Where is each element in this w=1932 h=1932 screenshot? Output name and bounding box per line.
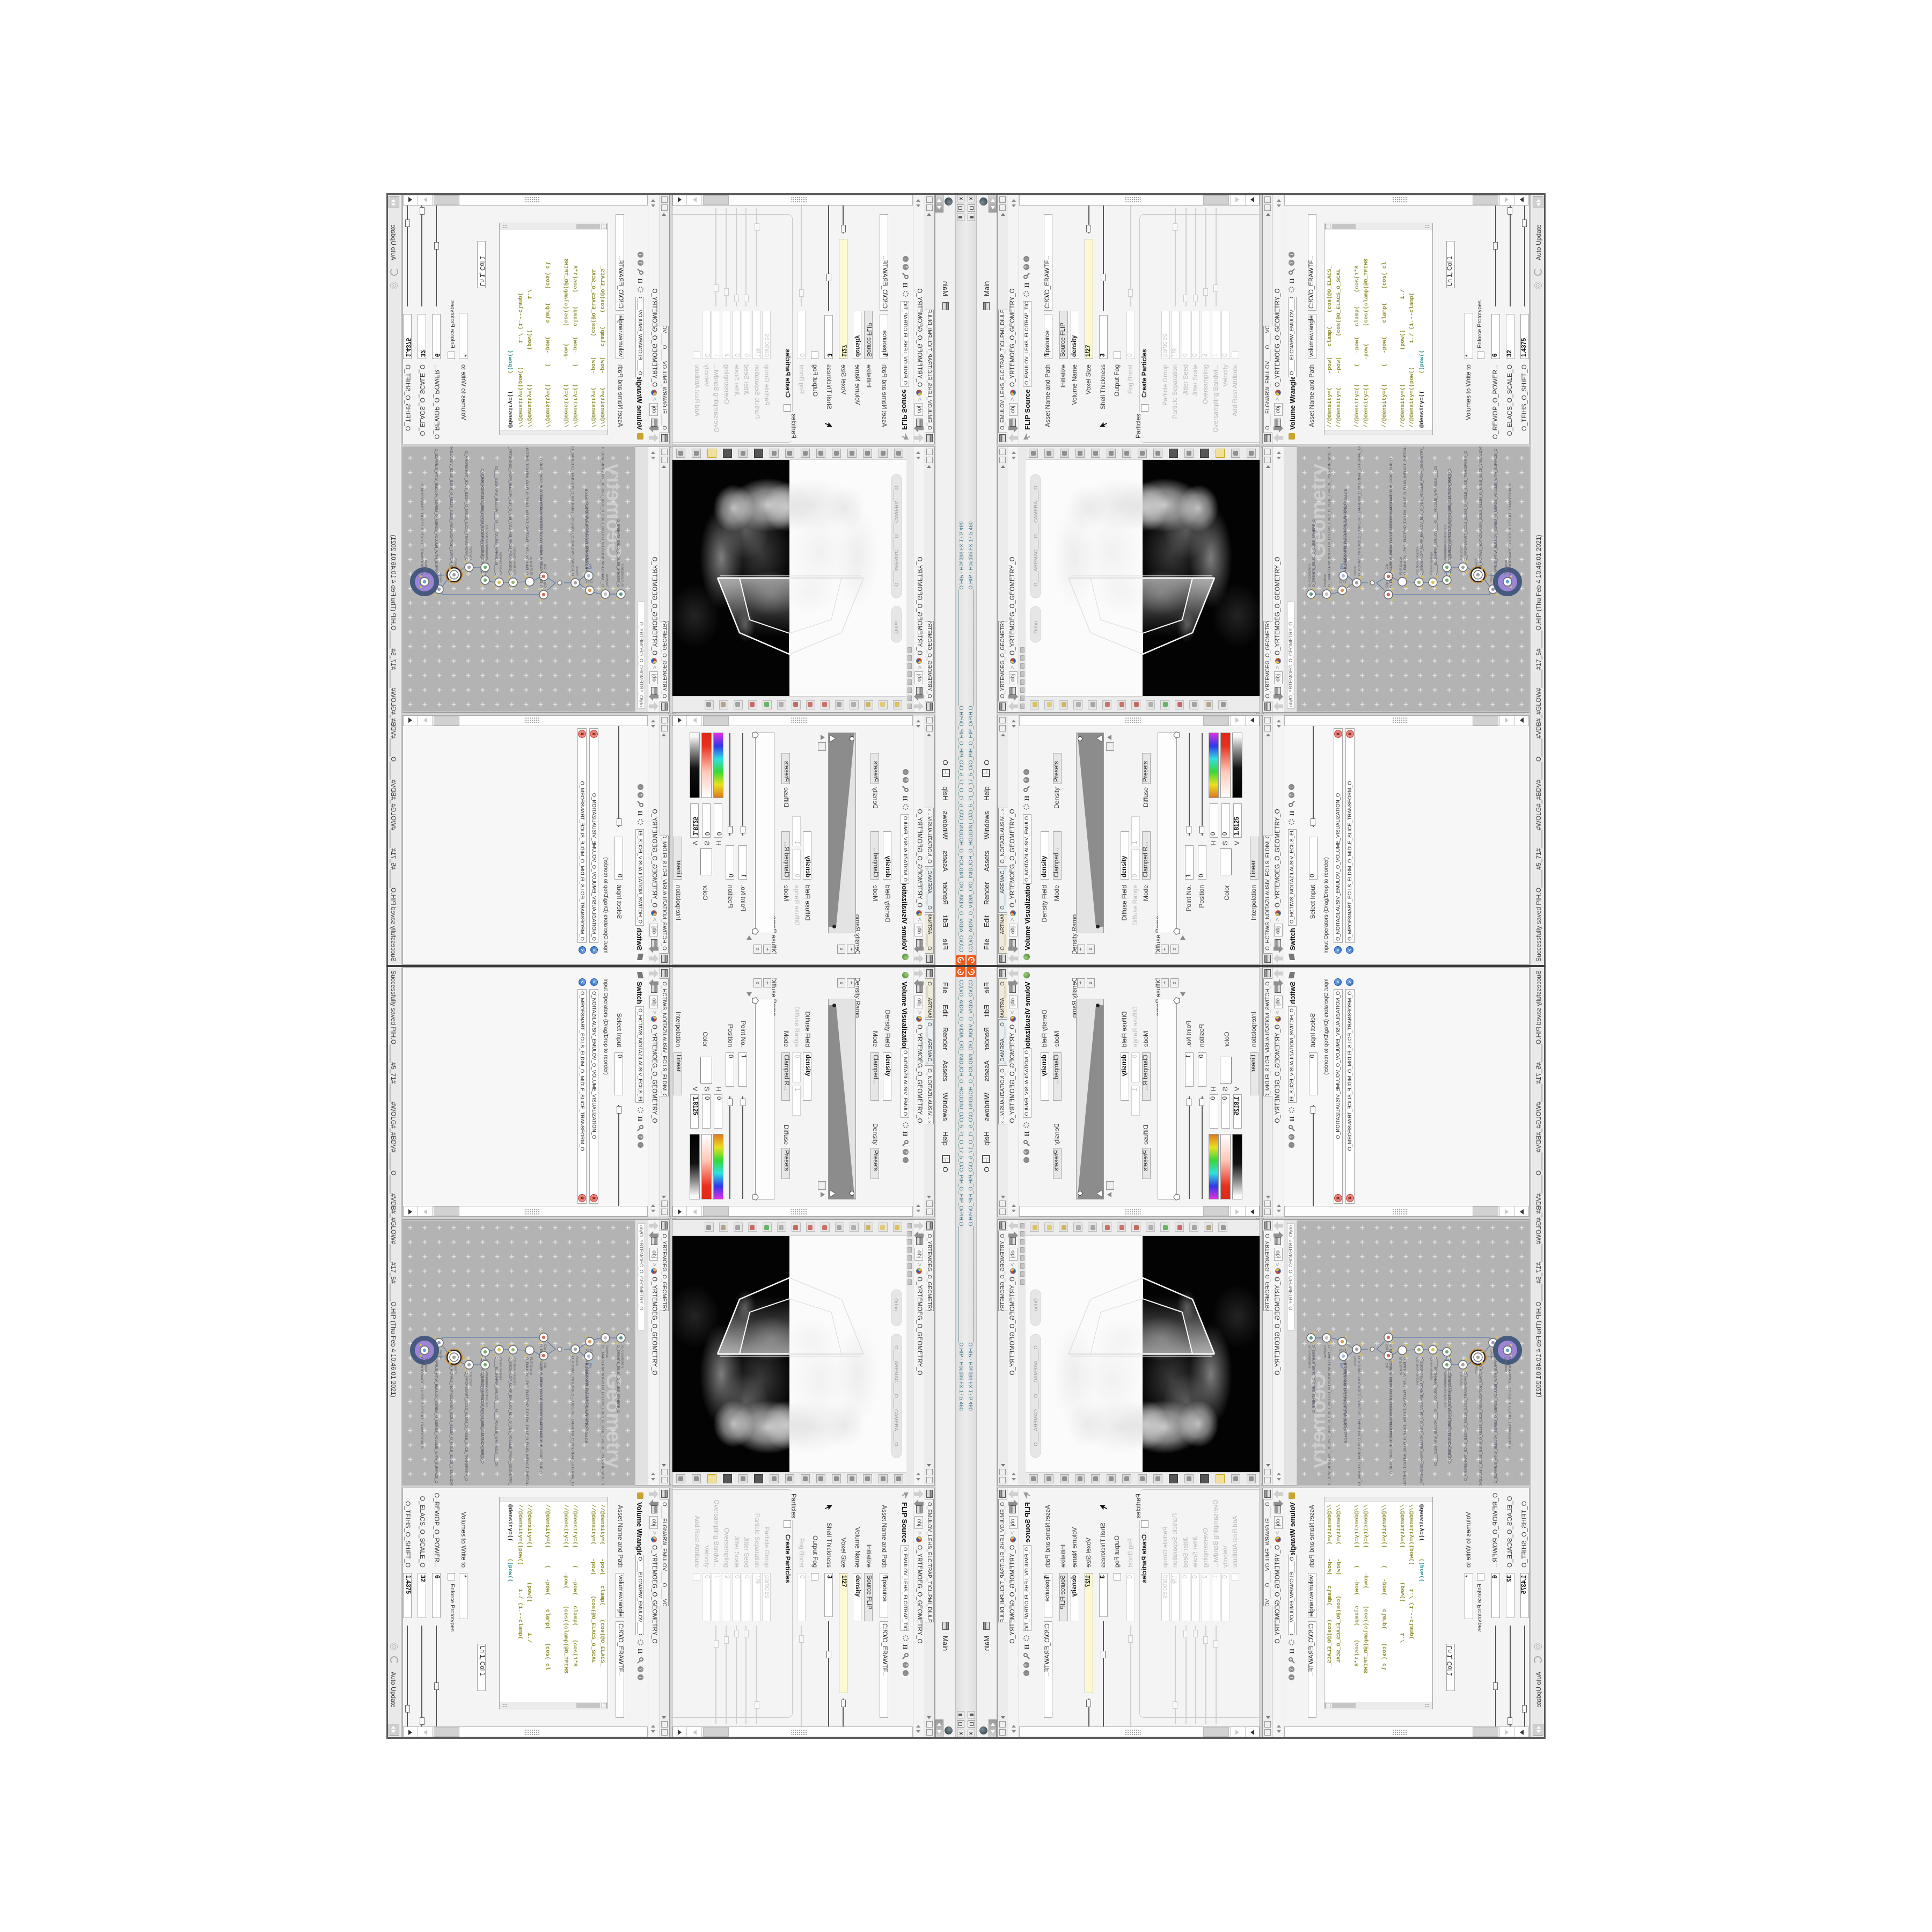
svg-text:O_ECILS_NOITAZILAUSIV_O_VISUAL: O_ECILS_NOITAZILAUSIV_O_VISUALIZATION_SL… <box>1448 469 1452 560</box>
svg-text:O_HCTIWS_YRTEMOEG_LANRETXE_LAN: O_HCTIWS_YRTEMOEG_LANRETXE_LANRETNI_O_IN… <box>570 447 574 576</box>
svg-text:O_PILC_ECAFRUS_RETUO_O_OUTER_S: O_PILC_ECAFRUS_RETUO_O_OUTER_SURFACE_CLI… <box>1389 491 1393 588</box>
svg-text:Transform: Transform <box>424 1357 427 1372</box>
svg-text:Clip: Clip <box>543 1344 546 1350</box>
svg-text:VolumeVisualizationSlice: VolumeVisualizationSlice <box>485 1372 488 1408</box>
svg-text:BO.MD3.PETS.TFOLS_O_SLOFT_STEP: BO.MD3.PETS.TFOLS_O_SLOFT_STEP_3DM.OB <box>1344 489 1348 569</box>
svg-text:O_EREHPS_EBUC_O_CUBE_SPHERE_O: O_EREHPS_EBUC_O_CUBE_SPHERE_O <box>616 519 620 587</box>
svg-text:O_EMULOV_LEHS_ELCITRAP_TICILPM: O_EMULOV_LEHS_ELCITRAP_TICILPMI_DIULF_O_… <box>525 1357 529 1485</box>
svg-text:Transform: Transform <box>469 1372 472 1386</box>
svg-text:Switch: Switch <box>575 1356 578 1366</box>
svg-text:O_PILC_ECAFRUS_RETUO_O_OUTER_S: O_PILC_ECAFRUS_RETUO_O_OUTER_SURFACE_CLI… <box>1389 1344 1393 1441</box>
svg-text:O____ELGNARW_EMULOV____O____VO: O____ELGNARW_EMULOV____O____VOLUME_WRANG… <box>494 1357 498 1467</box>
svg-text:O____AREMAC____O____CAMERA____: O____AREMAC____O____CAMERA____O <box>893 1345 899 1446</box>
svg-text:O_MROFSNART_TLUSER_O_RESULT_TR: O_MROFSNART_TLUSER_O_RESULT_TRANSFORM_O <box>420 1357 423 1448</box>
svg-text:O____AREMAC____O____CAMERA____: O____AREMAC____O____CAMERA____O <box>1033 1345 1039 1446</box>
svg-text:Clip: Clip <box>543 1363 546 1368</box>
svg-text:O_HCTIWS_NOITAZILAUSIV_ECILS_E: O_HCTIWS_NOITAZILAUSIV_ECILS_ELDIM_O_MID… <box>1479 1364 1483 1485</box>
svg-text:PolyWire: PolyWire <box>1324 574 1327 587</box>
svg-text:Clip: Clip <box>543 563 546 569</box>
svg-text:O_EMARFERIW_NOGYLOP_EREHPS_EBU: O_EMARFERIW_NOGYLOP_EREHPS_EBUC_O_CUBE_S… <box>1328 447 1331 587</box>
svg-text:Clip: Clip <box>1386 582 1389 588</box>
svg-text:O_EREHPS_EBUC_O_CUBE_SPHERE_O: O_EREHPS_EBUC_O_CUBE_SPHERE_O <box>1312 519 1316 587</box>
svg-text:Transform: Transform <box>424 560 427 575</box>
svg-text:Transform: Transform <box>1505 1357 1508 1372</box>
svg-text:VolumeVisualizationSlice: VolumeVisualizationSlice <box>1444 1372 1447 1408</box>
svg-text:FLIP Source: FLIP Source <box>529 1357 532 1375</box>
svg-text:an_CubeSphere: an_CubeSphere <box>1308 563 1312 587</box>
svg-text:an_CubeSphere: an_CubeSphere <box>1308 1345 1312 1368</box>
svg-text:O_ECILS_NOITAZILAUSIV_O_VISUAL: O_ECILS_NOITAZILAUSIV_O_VISUALIZATION_SL… <box>1448 1372 1452 1463</box>
svg-text:O_SNOGYLOP_MORF_EMULOV_BDV_O_V: O_SNOGYLOP_MORF_EMULOV_BDV_O_VDB_VOLUME_… <box>1420 1357 1424 1485</box>
svg-text:Volume Wrangle: Volume Wrangle <box>499 1357 502 1381</box>
svg-text:File: File <box>588 1363 591 1368</box>
svg-text:VDB from Polygons: VDB from Polygons <box>513 547 516 575</box>
svg-text:O_ECAFRUS_HTIW_EMULOV_EGREM_O_: O_ECAFRUS_HTIW_EMULOV_EGREM_O_MERGE_VOLU… <box>1494 449 1498 582</box>
svg-text:FLIP Source: FLIP Source <box>1400 1357 1403 1375</box>
svg-text:O_ECILS_NOITAZILAUSIV_O_VISUAL: O_ECILS_NOITAZILAUSIV_O_VISUALIZATION_SL… <box>480 469 484 560</box>
svg-text:VolumeVisualizationSlice: VolumeVisualizationSlice <box>1444 524 1447 560</box>
svg-text:O____AREMAC____O____CAMERA____: O____AREMAC____O____CAMERA____O <box>893 486 899 587</box>
svg-text:Ortho: Ortho <box>1033 1298 1039 1311</box>
svg-text:Ortho: Ortho <box>1033 621 1039 634</box>
svg-text:VDB from Polygons: VDB from Polygons <box>1416 1357 1419 1385</box>
svg-text:O_HCTIWS_NOITAZILAUSIV_ECILS_E: O_HCTIWS_NOITAZILAUSIV_ECILS_ELDIM_O_MID… <box>1479 447 1483 568</box>
svg-text:Clip: Clip <box>1386 1363 1389 1368</box>
svg-text:O_MROFSNART_ECILS_ELDIM_O_MIDL: O_MROFSNART_ECILS_ELDIM_O_MIDLE_SLICE_TR… <box>1464 1372 1468 1481</box>
svg-text:VDB from Polygons: VDB from Polygons <box>1416 547 1419 575</box>
svg-text:O_HCTIWS_YRTEMOEG_LANRETXE_LAN: O_HCTIWS_YRTEMOEG_LANRETXE_LANRETNI_O_IN… <box>1358 1356 1362 1485</box>
svg-text:O_EREHPS_EBUC_O_CUBE_SPHERE_O: O_EREHPS_EBUC_O_CUBE_SPHERE_O <box>616 1345 620 1413</box>
svg-text:Clip: Clip <box>1386 563 1389 569</box>
svg-text:O_MROFSNART_ECILS_ELDIM_O_MIDL: O_MROFSNART_ECILS_ELDIM_O_MIDLE_SLICE_TR… <box>464 451 468 560</box>
svg-text:Transform: Transform <box>1505 560 1508 575</box>
svg-text:BO.MD3.PETS.TFOLS_O_SLOFT_STEP: BO.MD3.PETS.TFOLS_O_SLOFT_STEP_3DM.OB <box>1344 1363 1348 1443</box>
svg-text:Transform: Transform <box>469 546 472 560</box>
svg-text:Volume Wrangle: Volume Wrangle <box>1430 1357 1433 1381</box>
svg-text:O_HCTIWS_YRTEMOEG_LANRETXE_LAN: O_HCTIWS_YRTEMOEG_LANRETXE_LANRETNI_O_IN… <box>1358 447 1362 576</box>
svg-text:Volume Wrangle: Volume Wrangle <box>1430 551 1433 575</box>
svg-text:BO.MD3.PETS.TFOLS_O_SLOFT_STEP: BO.MD3.PETS.TFOLS_O_SLOFT_STEP_3DM.OB <box>584 489 588 569</box>
svg-text:O_HCTIWS_YRTEMOEG_LANRETXE_LAN: O_HCTIWS_YRTEMOEG_LANRETXE_LANRETNI_O_IN… <box>570 1356 574 1485</box>
svg-text:O_HCTIWS_NOITAZILAUSIV_ECILS_E: O_HCTIWS_NOITAZILAUSIV_ECILS_ELDIM_O_MID… <box>449 447 453 568</box>
svg-text:BO.MD3.PETS.TFOLS_O_SLOFT_STEP: BO.MD3.PETS.TFOLS_O_SLOFT_STEP_3DM.OB <box>584 1363 588 1443</box>
svg-text:FLIP Source: FLIP Source <box>1400 557 1403 575</box>
svg-text:Volume Wrangle: Volume Wrangle <box>499 551 502 575</box>
svg-text:O_ECILS_NOITAZILAUSIV_O_VISUAL: O_ECILS_NOITAZILAUSIV_O_VISUALIZATION_SL… <box>480 1372 484 1463</box>
svg-text:PolyWire: PolyWire <box>605 1345 608 1358</box>
svg-text:Switch: Switch <box>1354 566 1357 576</box>
svg-text:O_EMULOV_LEHS_ELCITRAP_TICILPM: O_EMULOV_LEHS_ELCITRAP_TICILPMI_DIULF_O_… <box>525 447 529 575</box>
svg-text:O_MROFSNART_TLUSER_O_RESULT_TR: O_MROFSNART_TLUSER_O_RESULT_TRANSFORM_O <box>1509 1357 1512 1448</box>
svg-text:VolumeVisualizationSlice: VolumeVisualizationSlice <box>485 524 488 560</box>
svg-text:File: File <box>588 563 591 569</box>
svg-text:O_EMARFERIW_NOGYLOP_EREHPS_EBU: O_EMARFERIW_NOGYLOP_EREHPS_EBUC_O_CUBE_S… <box>601 1345 604 1485</box>
svg-text:O_SNOGYLOP_MORF_EMULOV_BDV_O_V: O_SNOGYLOP_MORF_EMULOV_BDV_O_VDB_VOLUME_… <box>508 1357 512 1485</box>
svg-text:VDB from Polygons: VDB from Polygons <box>513 1357 516 1385</box>
svg-text:O_EMARFERIW_NOGYLOP_EREHPS_EBU: O_EMARFERIW_NOGYLOP_EREHPS_EBUC_O_CUBE_S… <box>1328 1345 1331 1485</box>
svg-text:Switch: Switch <box>1354 1356 1357 1366</box>
svg-text:O_EMULOV_LEHS_ELCITRAP_TICILPM: O_EMULOV_LEHS_ELCITRAP_TICILPMI_DIULF_O_… <box>1403 447 1407 575</box>
svg-text:Clip: Clip <box>1386 1344 1389 1350</box>
svg-text:O____ELGNARW_EMULOV____O____VO: O____ELGNARW_EMULOV____O____VOLUME_WRANG… <box>1434 465 1438 575</box>
svg-text:PolyWire: PolyWire <box>1324 1345 1327 1358</box>
svg-text:O_PILC_ECAFRUS_RETUO_O_OUTER_S: O_PILC_ECAFRUS_RETUO_O_OUTER_SURFACE_CLI… <box>539 1344 543 1441</box>
svg-text:O_MROFSNART_TLUSER_O_RESULT_TR: O_MROFSNART_TLUSER_O_RESULT_TRANSFORM_O <box>1509 484 1512 575</box>
svg-text:O_ECAFRUS_HTIW_EMULOV_EGREM_O_: O_ECAFRUS_HTIW_EMULOV_EGREM_O_MERGE_VOLU… <box>1494 1350 1498 1483</box>
svg-text:O_HCTIWS_NOITAZILAUSIV_ECILS_E: O_HCTIWS_NOITAZILAUSIV_ECILS_ELDIM_O_MID… <box>449 1364 453 1485</box>
svg-text:O____AREMAC____O____CAMERA____: O____AREMAC____O____CAMERA____O <box>1033 486 1039 587</box>
svg-text:FLIP Source: FLIP Source <box>529 557 532 575</box>
svg-text:File: File <box>1341 563 1344 569</box>
svg-text:File: File <box>1341 1363 1344 1368</box>
svg-text:Transform: Transform <box>1460 546 1463 560</box>
svg-text:O____ELGNARW_EMULOV____O____VO: O____ELGNARW_EMULOV____O____VOLUME_WRANG… <box>494 465 498 575</box>
svg-text:Geometry: Geometry <box>602 1373 625 1468</box>
svg-text:Geometry: Geometry <box>1307 1373 1330 1468</box>
svg-text:Switch: Switch <box>453 558 457 568</box>
svg-text:O_MROFSNART_ECILS_ELDIM_O_MIDL: O_MROFSNART_ECILS_ELDIM_O_MIDLE_SLICE_TR… <box>1464 451 1468 560</box>
svg-text:Ortho: Ortho <box>893 1298 899 1311</box>
svg-text:PolyWire: PolyWire <box>605 574 608 587</box>
svg-text:Switch: Switch <box>1475 1364 1479 1374</box>
svg-text:O_MROFSNART_ECILS_ELDIM_O_MIDL: O_MROFSNART_ECILS_ELDIM_O_MIDLE_SLICE_TR… <box>464 1372 468 1481</box>
svg-text:Geometry: Geometry <box>1307 464 1330 559</box>
svg-text:O_EMULOV_LEHS_ELCITRAP_TICILPM: O_EMULOV_LEHS_ELCITRAP_TICILPMI_DIULF_O_… <box>1403 1357 1407 1485</box>
svg-text:Ortho: Ortho <box>893 621 899 634</box>
svg-text:Switch: Switch <box>453 1364 457 1374</box>
svg-text:O_EREHPS_EBUC_O_CUBE_SPHERE_O: O_EREHPS_EBUC_O_CUBE_SPHERE_O <box>1312 1345 1316 1413</box>
svg-text:O____ELGNARW_EMULOV____O____VO: O____ELGNARW_EMULOV____O____VOLUME_WRANG… <box>1434 1357 1438 1467</box>
svg-text:Clip: Clip <box>543 582 546 588</box>
svg-text:an_CubeSphere: an_CubeSphere <box>620 1345 624 1368</box>
svg-text:Geometry: Geometry <box>602 464 625 559</box>
svg-text:Switch: Switch <box>1475 558 1479 568</box>
svg-text:O_ECAFRUS_HTIW_EMULOV_EGREM_O_: O_ECAFRUS_HTIW_EMULOV_EGREM_O_MERGE_VOLU… <box>434 449 438 582</box>
svg-text:O_PILC_ECAFRUS_RETUO_O_OUTER_S: O_PILC_ECAFRUS_RETUO_O_OUTER_SURFACE_CLI… <box>539 491 543 588</box>
svg-text:O_SNOGYLOP_MORF_EMULOV_BDV_O_V: O_SNOGYLOP_MORF_EMULOV_BDV_O_VDB_VOLUME_… <box>1420 447 1424 575</box>
svg-text:O_ECAFRUS_HTIW_EMULOV_EGREM_O_: O_ECAFRUS_HTIW_EMULOV_EGREM_O_MERGE_VOLU… <box>434 1350 438 1483</box>
svg-text:Switch: Switch <box>575 566 578 576</box>
svg-text:O_MROFSNART_TLUSER_O_RESULT_TR: O_MROFSNART_TLUSER_O_RESULT_TRANSFORM_O <box>420 484 423 575</box>
svg-text:O_SNOGYLOP_MORF_EMULOV_BDV_O_V: O_SNOGYLOP_MORF_EMULOV_BDV_O_VDB_VOLUME_… <box>508 447 512 575</box>
svg-text:Transform: Transform <box>1460 1372 1463 1386</box>
svg-text:an_CubeSphere: an_CubeSphere <box>620 563 624 587</box>
svg-text:O_EMARFERIW_NOGYLOP_EREHPS_EBU: O_EMARFERIW_NOGYLOP_EREHPS_EBUC_O_CUBE_S… <box>601 447 604 587</box>
